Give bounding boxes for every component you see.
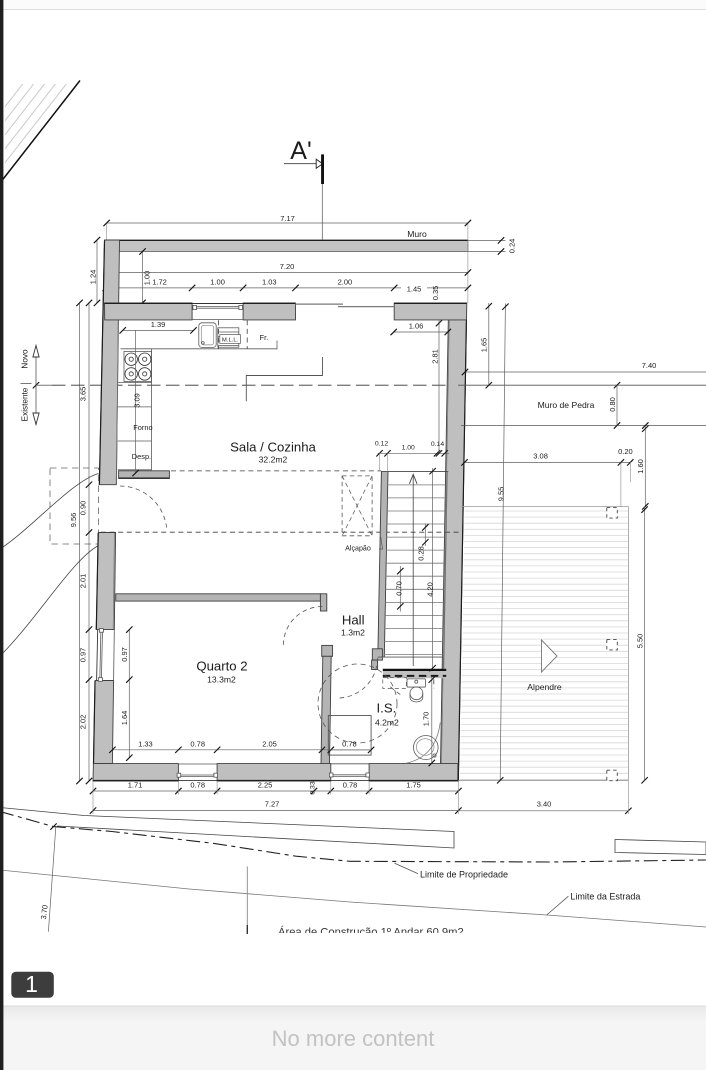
svg-text:7.17: 7.17 [280, 214, 295, 223]
svg-text:3.09: 3.09 [133, 393, 142, 408]
svg-text:0.78: 0.78 [342, 739, 357, 748]
svg-text:Existente: Existente [21, 387, 30, 421]
svg-text:3.65: 3.65 [78, 387, 87, 402]
svg-text:2.05: 2.05 [262, 739, 277, 748]
svg-text:0.97: 0.97 [78, 648, 87, 663]
svg-text:A': A' [290, 137, 311, 165]
svg-text:1.3m2: 1.3m2 [341, 628, 365, 638]
svg-text:Alçapão: Alçapão [345, 545, 371, 553]
svg-text:1.65: 1.65 [480, 338, 489, 353]
svg-text:1.06: 1.06 [409, 321, 424, 330]
svg-text:0.24: 0.24 [508, 239, 517, 254]
svg-text:1.71: 1.71 [128, 781, 143, 790]
svg-text:0.28: 0.28 [416, 546, 425, 561]
svg-text:7.27: 7.27 [265, 800, 280, 809]
svg-text:0.80: 0.80 [608, 397, 617, 412]
svg-text:1.64: 1.64 [120, 711, 129, 726]
svg-text:7.40: 7.40 [642, 361, 657, 370]
svg-text:0.20: 0.20 [618, 447, 633, 456]
svg-text:4.2m2: 4.2m2 [375, 718, 399, 728]
svg-text:1: 1 [25, 971, 38, 997]
svg-text:3.70: 3.70 [39, 904, 50, 920]
svg-text:No more content: No more content [272, 1026, 435, 1051]
svg-text:Limite de Propriedade: Limite de Propriedade [420, 870, 508, 880]
svg-text:3.08: 3.08 [533, 451, 548, 460]
svg-text:Alpendre: Alpendre [527, 682, 562, 692]
svg-text:2.81: 2.81 [430, 349, 439, 364]
svg-text:1.60: 1.60 [636, 459, 645, 474]
svg-text:1.24: 1.24 [88, 270, 97, 285]
svg-text:Hall: Hall [342, 613, 365, 628]
svg-text:0.35: 0.35 [431, 286, 440, 301]
svg-text:1.45: 1.45 [407, 284, 422, 293]
svg-text:Quarto 2: Quarto 2 [196, 659, 247, 674]
svg-text:4.20: 4.20 [425, 582, 434, 597]
svg-text:Limite da Estrada: Limite da Estrada [570, 892, 640, 902]
svg-text:M.L.L.: M.L.L. [222, 338, 239, 344]
svg-text:I.S.: I.S. [377, 701, 397, 716]
svg-text:1.33: 1.33 [138, 739, 153, 748]
svg-text:2.25: 2.25 [258, 781, 273, 790]
svg-text:Muro de Pedra: Muro de Pedra [538, 400, 595, 410]
svg-text:9.55: 9.55 [496, 487, 505, 502]
svg-text:2.00: 2.00 [338, 277, 353, 286]
svg-text:0.78: 0.78 [190, 739, 205, 748]
svg-text:2.02: 2.02 [78, 715, 87, 730]
svg-text:0.97: 0.97 [120, 647, 129, 662]
svg-text:0.78: 0.78 [343, 781, 358, 790]
svg-text:1.03: 1.03 [262, 277, 277, 286]
svg-text:9.56: 9.56 [69, 513, 78, 528]
svg-text:0.90: 0.90 [78, 501, 87, 516]
svg-text:1.70: 1.70 [422, 712, 431, 727]
svg-text:Desp.: Desp. [132, 452, 151, 461]
svg-text:32.2m2: 32.2m2 [259, 455, 288, 465]
svg-text:Muro: Muro [407, 229, 427, 239]
svg-text:3.40: 3.40 [537, 800, 552, 809]
svg-text:0.33: 0.33 [310, 781, 317, 794]
svg-text:1.75: 1.75 [406, 781, 421, 790]
svg-text:0.78: 0.78 [190, 781, 205, 790]
svg-text:1.00: 1.00 [402, 444, 415, 451]
svg-text:0.14: 0.14 [431, 441, 444, 448]
svg-text:1.72: 1.72 [152, 277, 167, 286]
svg-text:7.20: 7.20 [280, 262, 295, 271]
svg-text:0.70: 0.70 [395, 581, 404, 596]
svg-text:0.12: 0.12 [375, 441, 388, 448]
svg-text:Fr.: Fr. [260, 333, 269, 342]
svg-text:Novo: Novo [21, 349, 30, 369]
svg-text:13.3m2: 13.3m2 [207, 675, 236, 685]
svg-text:1.39: 1.39 [151, 320, 166, 329]
svg-text:2.01: 2.01 [78, 574, 87, 589]
svg-text:1.00: 1.00 [143, 271, 152, 286]
svg-text:5.50: 5.50 [635, 634, 644, 649]
svg-text:1.00: 1.00 [210, 277, 225, 286]
svg-text:Sala / Cozinha: Sala / Cozinha [230, 440, 316, 455]
svg-text:Forno: Forno [133, 423, 152, 432]
